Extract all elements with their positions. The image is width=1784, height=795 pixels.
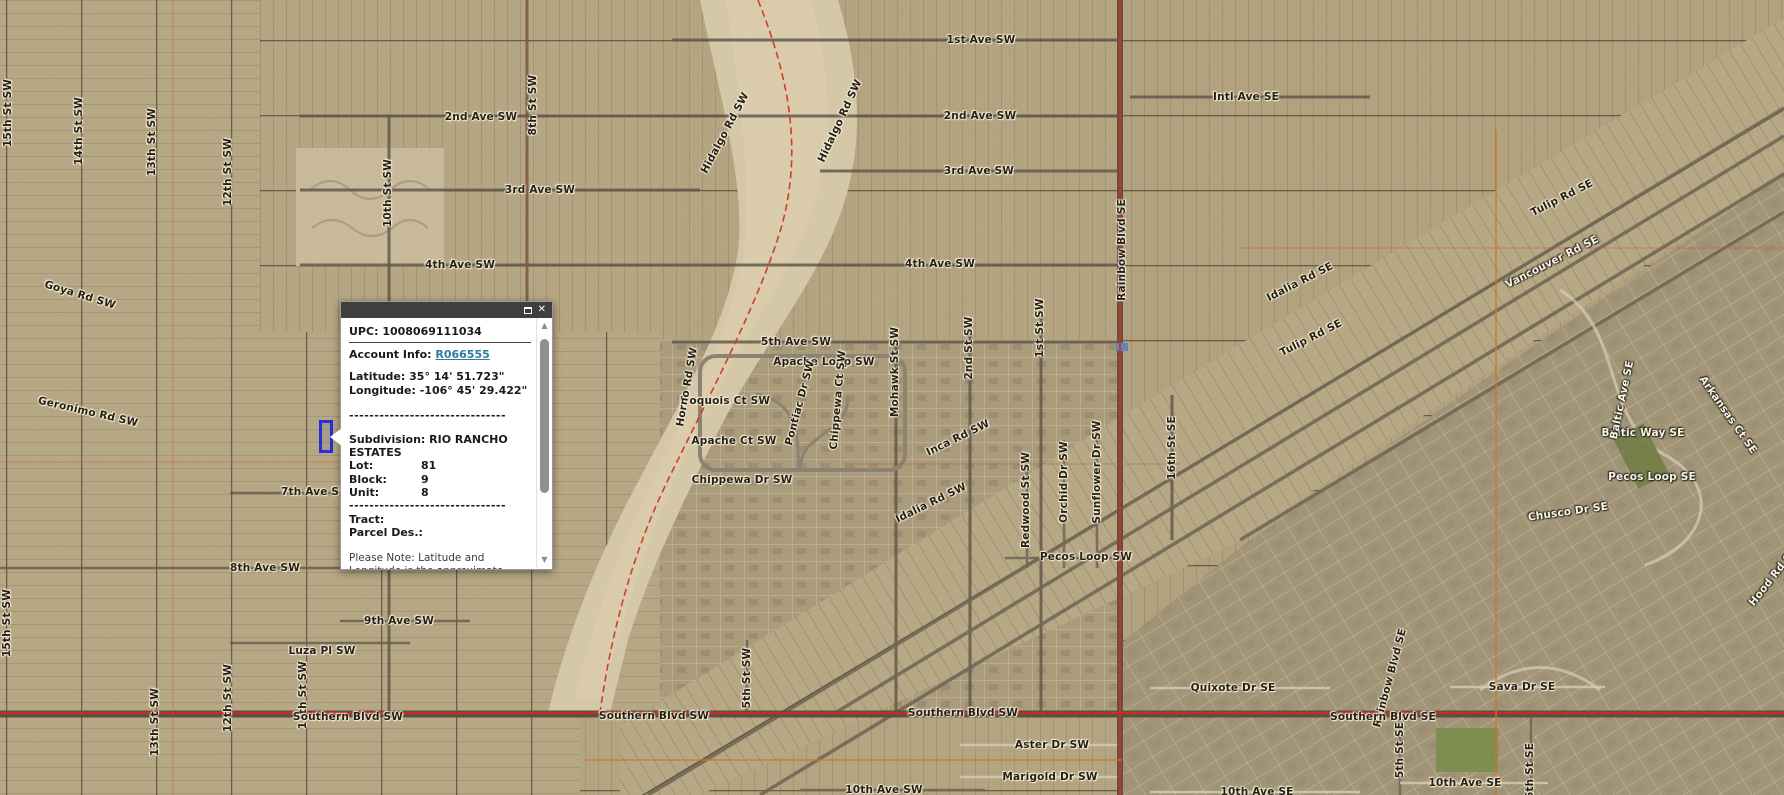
field-label: Unit: xyxy=(349,486,421,499)
separator-dashes: ------------------------------- xyxy=(349,499,531,512)
divider-line xyxy=(349,342,531,343)
parcel-upc: UPC: 1008069111034 xyxy=(349,325,531,338)
account-link[interactable]: R066555 xyxy=(435,348,489,361)
popup-fields: Lot:81Block:9Unit:8 xyxy=(349,459,531,499)
popup-titlebar[interactable]: ✕ xyxy=(341,302,552,318)
parcel-info-popup: ✕ UPC: 1008069111034 Account Info: R0665… xyxy=(340,301,553,570)
close-button[interactable]: ✕ xyxy=(538,305,546,315)
parcel-des-label: Parcel Des.: xyxy=(349,526,531,539)
upc-value: 1008069111034 xyxy=(382,325,482,338)
popup-scrollbar[interactable]: ▲ ▼ xyxy=(536,318,552,569)
field-value: 81 xyxy=(421,459,436,472)
scroll-up-arrow[interactable]: ▲ xyxy=(537,320,552,332)
separator-dashes: ------------------------------- xyxy=(349,409,531,422)
scroll-down-arrow[interactable]: ▼ xyxy=(537,554,552,566)
field-label: Block: xyxy=(349,473,421,486)
aerial-map[interactable] xyxy=(0,0,1784,795)
tract-label: Tract: xyxy=(349,513,531,526)
close-icon: ✕ xyxy=(538,305,546,315)
subdivision-label: Subdivision: xyxy=(349,433,425,446)
maximize-icon xyxy=(524,307,532,314)
popup-body: UPC: 1008069111034 Account Info: R066555… xyxy=(349,318,531,569)
field-label: Lot: xyxy=(349,459,421,472)
account-label: Account Info: xyxy=(349,348,432,361)
upc-label: UPC: xyxy=(349,325,378,338)
longitude-row: Longitude: -106° 45' 29.422" xyxy=(349,384,531,397)
account-info: Account Info: R066555 xyxy=(349,348,531,361)
noise-overlay xyxy=(0,0,1784,795)
field-value: 8 xyxy=(421,486,429,499)
parcel-field-row: Unit:8 xyxy=(349,486,531,499)
note-text: Please Note: Latitude and Longitude is t… xyxy=(349,552,531,569)
subdivision-row: Subdivision: RIO RANCHO ESTATES xyxy=(349,433,531,459)
map-viewport: 1st Ave SW2nd Ave SW2nd Ave SW3rd Ave SW… xyxy=(0,0,1784,795)
latitude-label: Latitude: xyxy=(349,370,405,383)
latitude-row: Latitude: 35° 14' 51.723" xyxy=(349,370,531,383)
maximize-button[interactable] xyxy=(524,307,532,314)
longitude-label: Longitude: xyxy=(349,384,416,397)
latitude-value: 35° 14' 51.723" xyxy=(409,370,504,383)
parcel-field-row: Lot:81 xyxy=(349,459,531,472)
parcel-field-row: Block:9 xyxy=(349,473,531,486)
longitude-value: -106° 45' 29.422" xyxy=(420,384,528,397)
field-value: 9 xyxy=(421,473,429,486)
scrollbar-thumb[interactable] xyxy=(540,339,549,493)
popup-pointer xyxy=(330,428,342,446)
